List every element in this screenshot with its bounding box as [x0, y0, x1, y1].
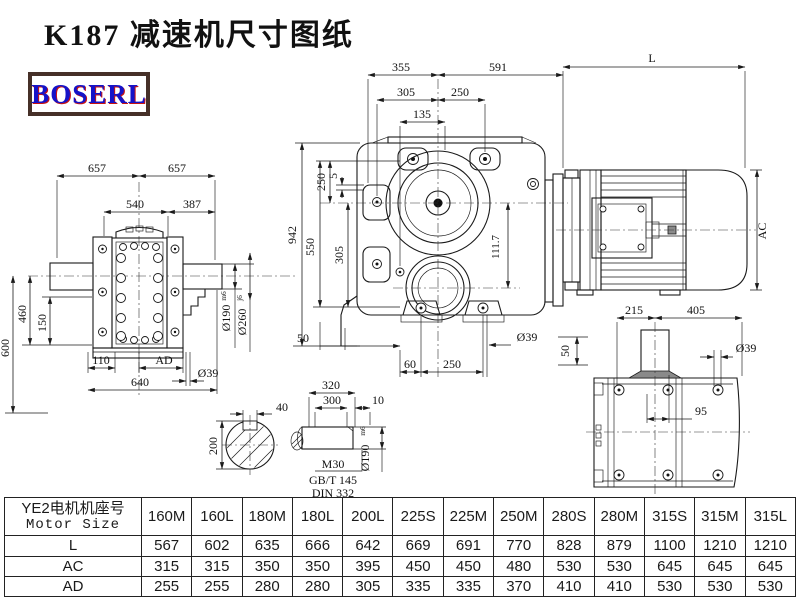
dim-label: 305: [397, 85, 415, 99]
dim-tolerance: m6: [219, 291, 228, 301]
dim-tolerance: j6: [235, 295, 244, 302]
thread-label: M30: [322, 457, 345, 471]
col-header: 280S: [544, 498, 594, 536]
table-cell: 335: [393, 576, 443, 596]
drawing-page: K187 减速机尺寸图纸 BOSERL: [0, 0, 800, 601]
dim-label: Ø260: [235, 309, 249, 336]
table-cell: 602: [192, 536, 242, 556]
table-header-row: YE2电机机座号 Motor Size 160M 160L 180M 180L …: [5, 498, 796, 536]
table-cell: 530: [695, 576, 745, 596]
col-header: 315M: [695, 498, 745, 536]
table-header-motor-size: YE2电机机座号 Motor Size: [5, 498, 142, 536]
table-cell: 315: [192, 556, 242, 576]
col-header: 180M: [242, 498, 292, 536]
dim-label: 640: [131, 375, 149, 389]
dim-label: L: [648, 51, 655, 65]
header-chinese: YE2电机机座号: [5, 500, 141, 517]
table-cell: 255: [192, 576, 242, 596]
table-cell: 530: [544, 556, 594, 576]
table-cell: 828: [544, 536, 594, 556]
table-cell: 645: [695, 556, 745, 576]
table-cell: 315: [142, 556, 192, 576]
dim-label: 540: [126, 197, 144, 211]
dim-label: AD: [155, 353, 173, 367]
dim-label: 110: [92, 353, 110, 367]
dim-label: 387: [183, 197, 201, 211]
dim-label: Ø39: [517, 330, 538, 344]
table-cell: 255: [142, 576, 192, 596]
dim-label: 300: [323, 393, 341, 407]
table-cell: 305: [343, 576, 393, 596]
dim-label: 215: [625, 303, 643, 317]
dim-label: 60: [404, 357, 416, 371]
dim-label: 657: [88, 161, 106, 175]
standard-label: DIN 332: [312, 486, 354, 497]
dim-label: 150: [35, 314, 49, 332]
shaft-section-view: 40 200: [206, 400, 292, 486]
row-label: L: [5, 536, 142, 556]
row-label: AD: [5, 576, 142, 596]
table-cell: 280: [242, 576, 292, 596]
col-header: 315S: [644, 498, 694, 536]
table-cell: 645: [644, 556, 694, 576]
table-cell: 770: [494, 536, 544, 556]
dim-label: 5: [326, 173, 340, 179]
motor-view: L AC: [556, 51, 769, 295]
table-row-AD: AD 255 255 280 280 305 335 335 370 410 4…: [5, 576, 796, 596]
dim-label: 657: [168, 161, 186, 175]
table-cell: 1100: [644, 536, 694, 556]
header-english: Motor Size: [5, 517, 141, 533]
table-cell: 1210: [745, 536, 795, 556]
col-header: 315L: [745, 498, 795, 536]
col-header: 225S: [393, 498, 443, 536]
front-view: 657 657 540 387 600 460 150 110 AD 640: [0, 161, 296, 413]
dim-label: 40: [276, 400, 288, 414]
dim-label: 10: [372, 393, 384, 407]
dim-tolerance: m6: [358, 426, 367, 436]
table-cell: 530: [745, 576, 795, 596]
table-cell: 691: [443, 536, 493, 556]
dim-label: 305: [332, 246, 346, 264]
dim-label: 135: [413, 107, 431, 121]
table-cell: 669: [393, 536, 443, 556]
table-cell: 666: [292, 536, 342, 556]
dim-label: AC: [755, 223, 769, 240]
table-row-L: L 567 602 635 666 642 669 691 770 828 87…: [5, 536, 796, 556]
col-header: 225M: [443, 498, 493, 536]
table-row-AC: AC 315 315 350 350 395 450 450 480 530 5…: [5, 556, 796, 576]
top-view: 215 405 95 Ø39: [586, 303, 756, 497]
col-header: 280M: [594, 498, 644, 536]
col-header: 200L: [343, 498, 393, 536]
table-cell: 280: [292, 576, 342, 596]
side-view: 355 591 305 250 135 942 550 250 305 5 11…: [285, 60, 588, 377]
col-header: 160M: [142, 498, 192, 536]
table-cell: 350: [242, 556, 292, 576]
dim-label: 111.7: [490, 235, 502, 259]
col-header: 160L: [192, 498, 242, 536]
dim-label: 405: [687, 303, 705, 317]
dim-label: 942: [285, 226, 299, 244]
dim-label: 600: [0, 339, 12, 357]
table-cell: 530: [644, 576, 694, 596]
dim-label: 460: [15, 305, 29, 323]
table-cell: 480: [494, 556, 544, 576]
dim-label: Ø39: [736, 341, 757, 355]
dimension-drawing: 657 657 540 387 600 460 150 110 AD 640: [0, 0, 800, 497]
table-cell: 335: [443, 576, 493, 596]
col-header: 180L: [292, 498, 342, 536]
table-cell: 350: [292, 556, 342, 576]
dim-label: 250: [451, 85, 469, 99]
table-cell: 645: [745, 556, 795, 576]
dim-label: 50: [558, 345, 572, 357]
table-cell: 642: [343, 536, 393, 556]
table-cell: 567: [142, 536, 192, 556]
dim-label: 95: [695, 404, 707, 418]
standard-label: GB/T 145: [309, 473, 357, 487]
dim-label: 591: [489, 60, 507, 74]
dim-label: 200: [206, 437, 220, 455]
table-cell: 450: [393, 556, 443, 576]
table-cell: 450: [443, 556, 493, 576]
motor-size-table: YE2电机机座号 Motor Size 160M 160L 180M 180L …: [4, 497, 796, 597]
table-cell: 410: [544, 576, 594, 596]
dim-label: 355: [392, 60, 410, 74]
dim-label: 250: [443, 357, 461, 371]
table-cell: 1210: [695, 536, 745, 556]
output-shaft-view: 320 300 10 Ø190 m6 M30 GB/T 145 DIN 332: [291, 378, 386, 497]
table-cell: 395: [343, 556, 393, 576]
dim-label: 50: [297, 331, 309, 345]
table-cell: 370: [494, 576, 544, 596]
table-cell: 410: [594, 576, 644, 596]
dim-label: 550: [303, 238, 317, 256]
dim-label: Ø39: [198, 366, 219, 380]
dim-label: 320: [322, 378, 340, 392]
col-header: 250M: [494, 498, 544, 536]
dim-label: Ø190: [358, 445, 372, 472]
table-cell: 530: [594, 556, 644, 576]
dim-label: Ø190: [219, 305, 233, 332]
row-label: AC: [5, 556, 142, 576]
table-cell: 635: [242, 536, 292, 556]
table-cell: 879: [594, 536, 644, 556]
